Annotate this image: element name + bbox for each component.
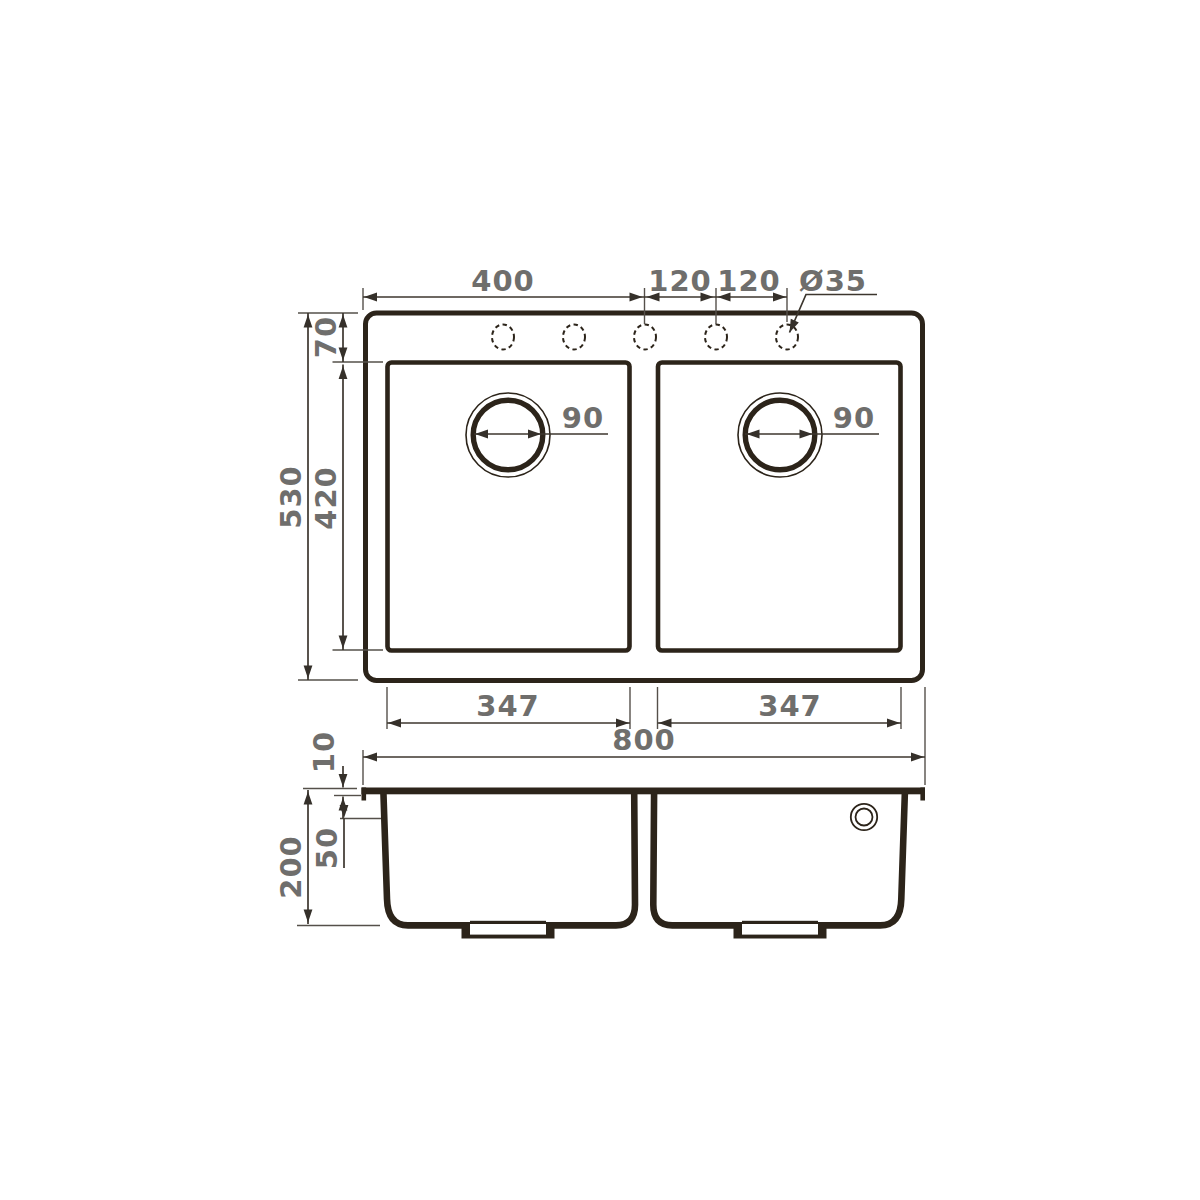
dim-arrow	[475, 430, 488, 439]
technical-drawing-canvas: 400 120 120 Ø35 530 70 420 90 90 347 347…	[0, 0, 1200, 1200]
extension-lines	[297, 288, 925, 926]
dim-arrow	[339, 366, 348, 379]
faucet-hole-4	[705, 325, 727, 350]
dim-arrow	[340, 805, 349, 818]
dim-label-dia35: Ø35	[799, 264, 867, 298]
sink-outer-rim	[366, 313, 923, 681]
dim-arrow	[528, 430, 541, 439]
dim-label-347-right: 347	[758, 689, 822, 723]
section-rim	[362, 788, 926, 795]
dim-arrow	[304, 910, 313, 923]
dim-label-800: 800	[612, 723, 676, 757]
dim-arrow	[364, 293, 377, 302]
faucet-hole-5	[776, 325, 798, 350]
dim-arrow	[887, 719, 900, 728]
sink-dimension-drawing: 400 120 120 Ø35 530 70 420 90 90 347 347…	[0, 0, 1200, 1200]
section-left-bowl-profile	[383, 792, 635, 925]
section-rim-left-edge	[362, 788, 367, 801]
dim-arrow	[911, 753, 924, 762]
dim-arrow	[339, 774, 348, 787]
dim-label-200: 200	[274, 835, 308, 899]
dim-label-50: 50	[310, 827, 344, 869]
dim-label-120-right: 120	[717, 264, 781, 298]
faucet-hole-1	[492, 325, 514, 350]
overflow-hole-inner	[856, 809, 873, 826]
dim-label-420: 420	[309, 466, 343, 530]
dim-label-90-right: 90	[833, 401, 875, 435]
faucet-hole-3	[634, 325, 656, 350]
dimension-lines	[308, 295, 925, 925]
dim-label-90-left: 90	[562, 401, 604, 435]
dim-arrow	[304, 792, 313, 805]
dimension-arrows	[304, 293, 924, 923]
dim-arrow	[747, 430, 760, 439]
dim-arrow	[339, 636, 348, 649]
dim-label-347-left: 347	[476, 689, 540, 723]
dim-arrow	[630, 293, 643, 302]
top-view	[366, 313, 923, 681]
section-right-drain-fitting	[734, 921, 827, 939]
dim-arrow	[304, 666, 313, 679]
dim-label-400: 400	[471, 264, 535, 298]
section-rim-right-edge	[920, 788, 925, 801]
dim-label-10: 10	[307, 731, 341, 773]
dim-label-530: 530	[274, 465, 308, 529]
section-view	[362, 788, 926, 939]
section-left-drain-fitting	[462, 921, 555, 939]
dim-label-70: 70	[309, 316, 343, 358]
dim-arrow	[388, 719, 401, 728]
dim-label-120-left: 120	[648, 264, 712, 298]
dim-arrow	[800, 430, 813, 439]
dim-arrow	[364, 753, 377, 762]
faucet-hole-2	[563, 325, 585, 350]
section-right-bowl-profile	[653, 792, 905, 925]
